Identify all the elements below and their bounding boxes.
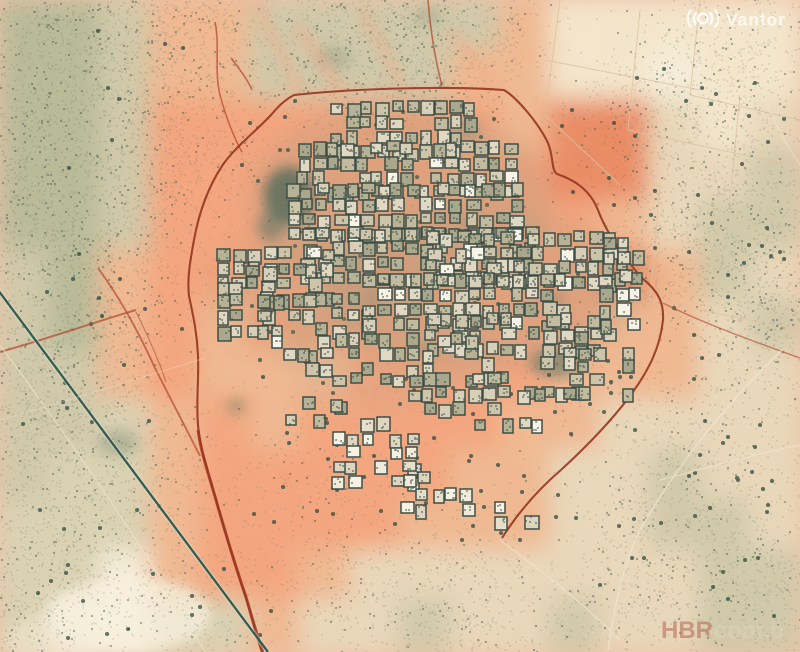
svg-text:Vantor: Vantor bbox=[726, 10, 786, 30]
svg-text:HBR: HBR bbox=[661, 617, 713, 644]
svg-text:.com.b: .com.b bbox=[707, 617, 784, 644]
